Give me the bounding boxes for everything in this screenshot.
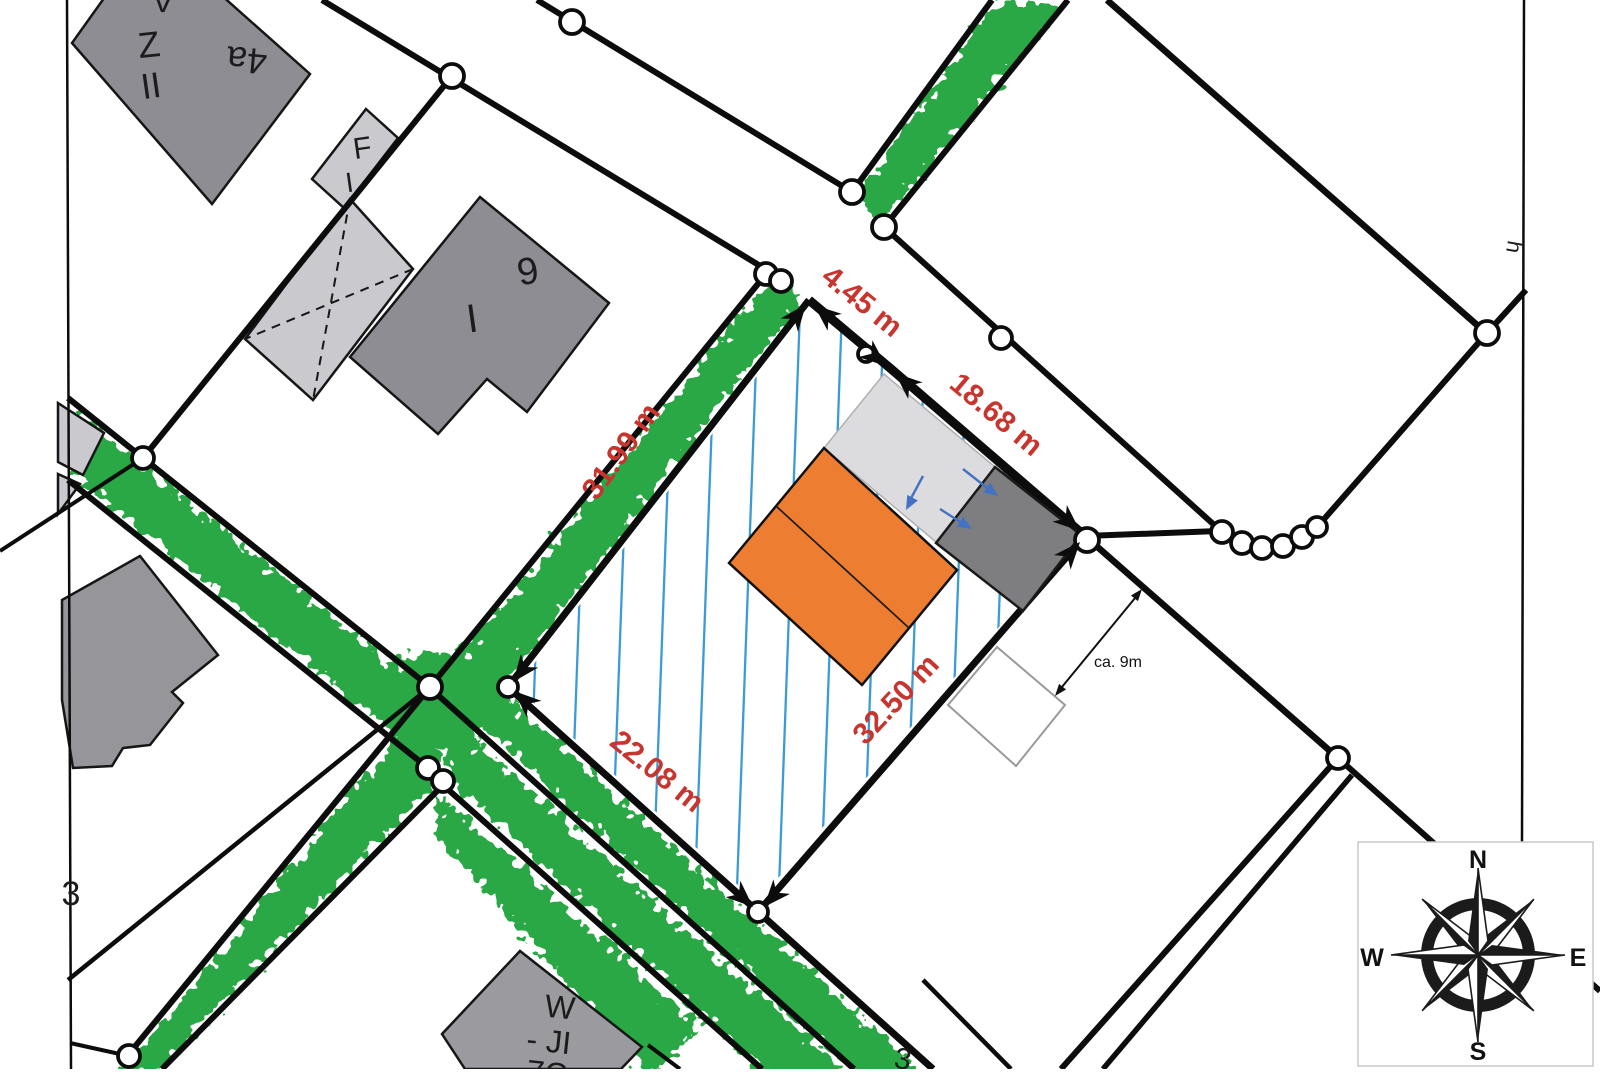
svg-text:ca. 9m: ca. 9m [1094, 654, 1142, 671]
svg-text:E: E [1570, 944, 1587, 972]
svg-text:4a: 4a [224, 38, 268, 82]
svg-text:A: A [151, 0, 174, 19]
svg-text:W: W [1360, 944, 1384, 972]
svg-text:Z: Z [136, 23, 162, 66]
svg-text:3: 3 [62, 875, 81, 913]
svg-text:S: S [1470, 1038, 1487, 1066]
svg-text:W: W [543, 988, 578, 1027]
svg-text:N: N [1469, 846, 1487, 874]
